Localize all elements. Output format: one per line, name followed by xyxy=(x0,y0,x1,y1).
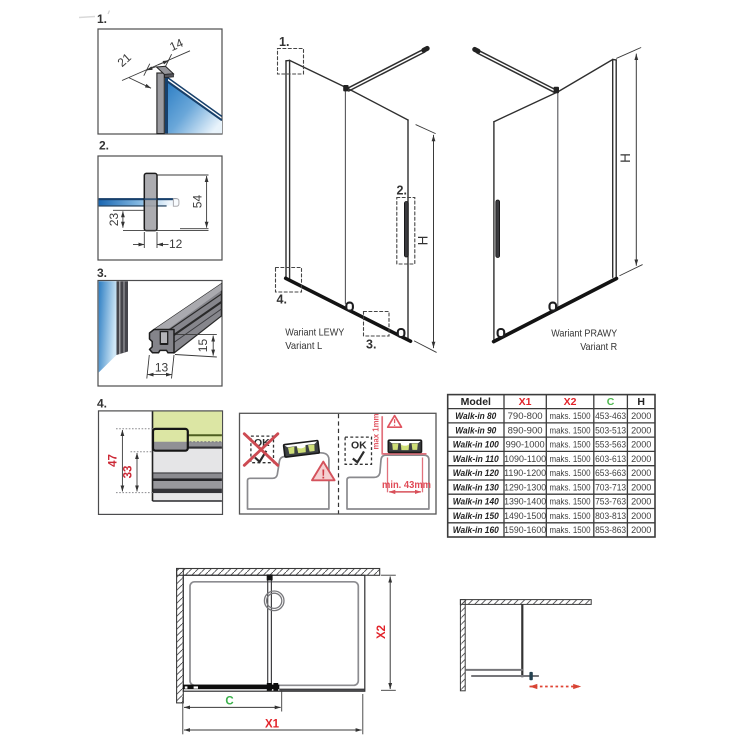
svg-text:Variant R: Variant R xyxy=(580,342,617,353)
svg-text:X1: X1 xyxy=(519,396,532,408)
svg-text:maks. 1500: maks. 1500 xyxy=(550,411,591,421)
svg-text:15: 15 xyxy=(196,339,210,353)
svg-text:Walk-in 100: Walk-in 100 xyxy=(453,440,499,450)
svg-text:1590-1600: 1590-1600 xyxy=(504,525,546,535)
svg-text:1.: 1. xyxy=(97,12,107,26)
svg-text:2000: 2000 xyxy=(631,497,651,507)
svg-text:1190-1200: 1190-1200 xyxy=(504,468,546,478)
svg-text:3.: 3. xyxy=(97,266,107,280)
svg-text:790-800: 790-800 xyxy=(508,411,543,421)
svg-text:23: 23 xyxy=(107,213,121,227)
svg-text:Walk-in 160: Walk-in 160 xyxy=(453,525,499,535)
svg-text:Walk-in 80: Walk-in 80 xyxy=(455,411,496,421)
svg-text:503-513: 503-513 xyxy=(595,425,626,435)
svg-text:Walk-in 110: Walk-in 110 xyxy=(453,454,499,464)
svg-text:1390-1400: 1390-1400 xyxy=(504,497,546,507)
svg-text:Walk-in 150: Walk-in 150 xyxy=(453,511,499,521)
svg-text:H: H xyxy=(416,236,431,246)
svg-text:13: 13 xyxy=(155,360,169,374)
svg-text:653-663: 653-663 xyxy=(595,468,626,478)
svg-text:Walk-in 140: Walk-in 140 xyxy=(453,497,499,507)
svg-text:Walk-in 130: Walk-in 130 xyxy=(453,482,499,492)
svg-text:Variant L: Variant L xyxy=(285,341,322,352)
svg-text:990-1000: 990-1000 xyxy=(506,440,545,450)
svg-text:2000: 2000 xyxy=(631,425,651,435)
svg-text:1490-1500: 1490-1500 xyxy=(504,511,546,521)
svg-text:maks. 1500: maks. 1500 xyxy=(550,497,591,507)
svg-text:maks. 1500: maks. 1500 xyxy=(550,482,591,492)
svg-text:890-900: 890-900 xyxy=(508,425,543,435)
svg-text:803-813: 803-813 xyxy=(595,511,626,521)
svg-text:4.: 4. xyxy=(277,293,287,307)
svg-text:2.: 2. xyxy=(99,139,109,153)
svg-text:Model: Model xyxy=(461,396,491,408)
svg-text:2000: 2000 xyxy=(631,411,651,421)
svg-text:X2: X2 xyxy=(564,396,577,408)
svg-text:H: H xyxy=(618,153,633,163)
svg-text:2000: 2000 xyxy=(631,468,651,478)
svg-text:maks. 1500: maks. 1500 xyxy=(550,440,591,450)
svg-text:Wariant LEWY: Wariant LEWY xyxy=(285,328,344,339)
svg-text:X1: X1 xyxy=(265,718,280,730)
svg-text:47: 47 xyxy=(108,454,120,467)
svg-text:1090-1100: 1090-1100 xyxy=(504,454,546,464)
svg-text:12: 12 xyxy=(169,237,183,251)
svg-text:2000: 2000 xyxy=(631,454,651,464)
svg-text:H: H xyxy=(637,396,645,408)
svg-text:1.: 1. xyxy=(279,35,289,49)
svg-text:!: ! xyxy=(321,468,325,482)
svg-text:maks. 1500: maks. 1500 xyxy=(550,454,591,464)
svg-text:2000: 2000 xyxy=(631,525,651,535)
svg-text:Walk-in 90: Walk-in 90 xyxy=(455,425,496,435)
svg-text:maks. 1500: maks. 1500 xyxy=(550,511,591,521)
svg-text:4.: 4. xyxy=(97,397,107,411)
svg-text:C: C xyxy=(225,696,233,708)
svg-text:max 1mm: max 1mm xyxy=(372,413,381,449)
svg-text:14: 14 xyxy=(167,36,185,54)
svg-text:54: 54 xyxy=(191,195,205,209)
svg-text:min. 43mm: min. 43mm xyxy=(382,480,431,491)
svg-text:C: C xyxy=(607,396,615,408)
svg-text:33: 33 xyxy=(123,466,135,479)
svg-text:OK: OK xyxy=(351,439,367,451)
svg-text:553-563: 553-563 xyxy=(595,440,626,450)
svg-text:2000: 2000 xyxy=(631,482,651,492)
svg-text:853-863: 853-863 xyxy=(595,525,626,535)
svg-text:703-713: 703-713 xyxy=(595,482,626,492)
svg-text:Walk-in 120: Walk-in 120 xyxy=(453,468,499,478)
svg-text:753-763: 753-763 xyxy=(595,497,626,507)
svg-text:Wariant PRAWY: Wariant PRAWY xyxy=(551,329,617,340)
svg-text:X2: X2 xyxy=(376,625,388,639)
svg-text:1290-1300: 1290-1300 xyxy=(504,482,546,492)
svg-text:2000: 2000 xyxy=(631,511,651,521)
svg-text:2.: 2. xyxy=(397,184,407,198)
svg-text:3.: 3. xyxy=(366,338,376,352)
svg-text:maks. 1500: maks. 1500 xyxy=(550,525,591,535)
svg-text:603-613: 603-613 xyxy=(595,454,626,464)
svg-text:maks. 1500: maks. 1500 xyxy=(550,425,591,435)
svg-text:21: 21 xyxy=(115,50,135,70)
svg-text:2000: 2000 xyxy=(631,440,651,450)
svg-text:maks. 1500: maks. 1500 xyxy=(550,468,591,478)
svg-text:453-463: 453-463 xyxy=(595,411,626,421)
